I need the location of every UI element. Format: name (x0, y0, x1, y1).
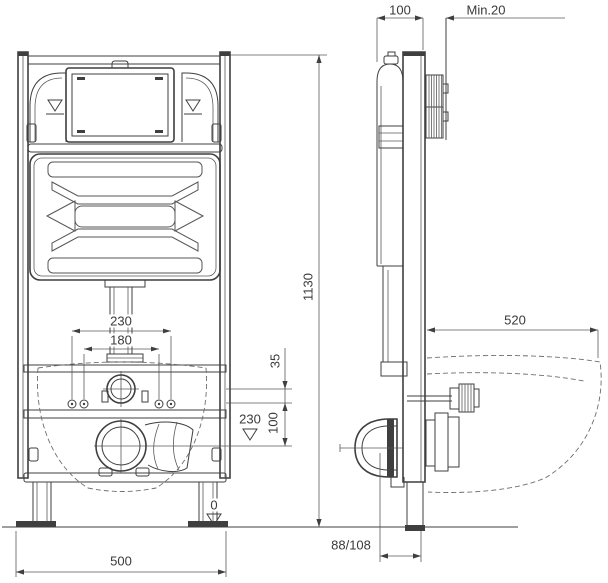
dim-label-drain-level: 230 (237, 413, 263, 426)
flush-plate-opening (66, 61, 174, 142)
dim-label-fixing-to-drain: 100 (267, 410, 280, 436)
dim-label-outlet-offset: 88/108 (329, 539, 373, 552)
water-supply-fitting (407, 384, 479, 412)
drain-elbow-profile (340, 419, 404, 487)
drain-outlet (94, 419, 292, 476)
front-view (16, 52, 292, 527)
dim-label-bowl-depth: 520 (502, 314, 528, 327)
dim-label-frame-width: 500 (108, 555, 134, 568)
left-corner-bracket (27, 73, 66, 142)
tank-rib-pattern (47, 162, 203, 273)
dim-label-flush-offset: 35 (269, 352, 282, 370)
side-view (340, 18, 601, 531)
drain-level-triangle (243, 429, 257, 440)
dim-label-frame-height: 1130 (302, 271, 315, 303)
dim-label-fixing-outer: 230 (108, 315, 134, 328)
dim-label-fixing-inner: 180 (108, 334, 134, 347)
bowl-connector-rings (426, 413, 459, 471)
right-corner-bracket (182, 73, 221, 142)
frame-profile (403, 52, 425, 531)
adjustable-feet (16, 448, 228, 527)
wall-mount-bracket (426, 18, 448, 140)
frame-posts (18, 52, 230, 478)
dim-label-frame-depth: 100 (387, 4, 413, 17)
dim-label-floor-level: 0 (208, 499, 219, 512)
bowl-outline-side (427, 355, 601, 492)
fixing-bolts (68, 400, 175, 408)
cistern-tank (28, 144, 222, 280)
technical-drawing-canvas: 100 Min.20 1130 520 230 180 35 100 230 0… (0, 0, 608, 583)
flush-pipe-connector (102, 371, 148, 407)
dim-label-wall-clearance: Min.20 (464, 4, 507, 17)
